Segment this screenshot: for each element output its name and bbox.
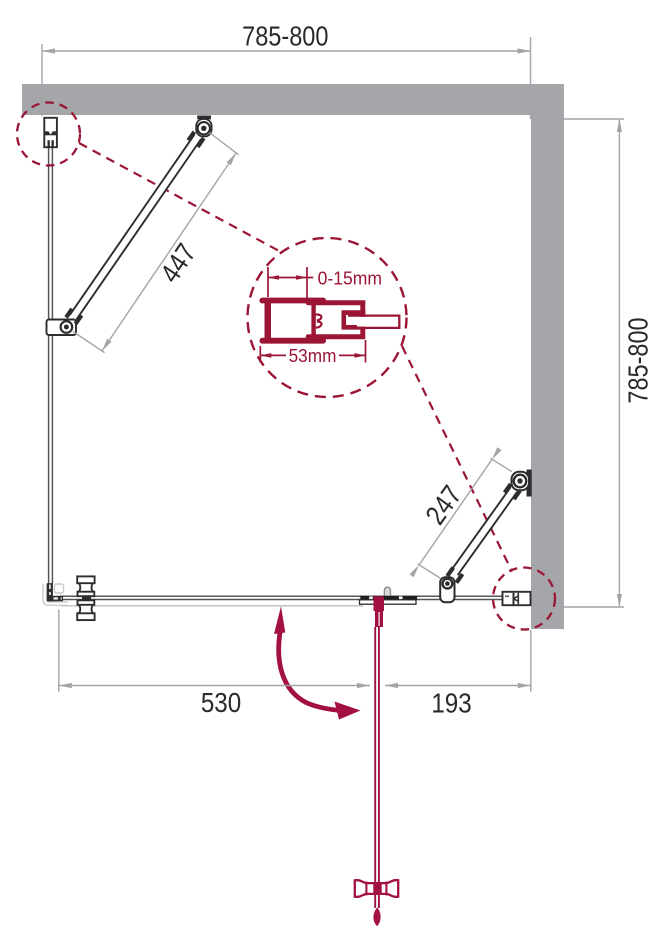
svg-text:53mm: 53mm xyxy=(289,345,337,366)
svg-text:785-800: 785-800 xyxy=(624,317,654,403)
svg-text:785-800: 785-800 xyxy=(242,21,328,51)
svg-text:247: 247 xyxy=(419,479,468,530)
svg-text:530: 530 xyxy=(201,689,241,719)
svg-text:193: 193 xyxy=(431,689,471,719)
svg-text:447: 447 xyxy=(153,237,202,288)
svg-text:0-15mm: 0-15mm xyxy=(318,268,382,289)
